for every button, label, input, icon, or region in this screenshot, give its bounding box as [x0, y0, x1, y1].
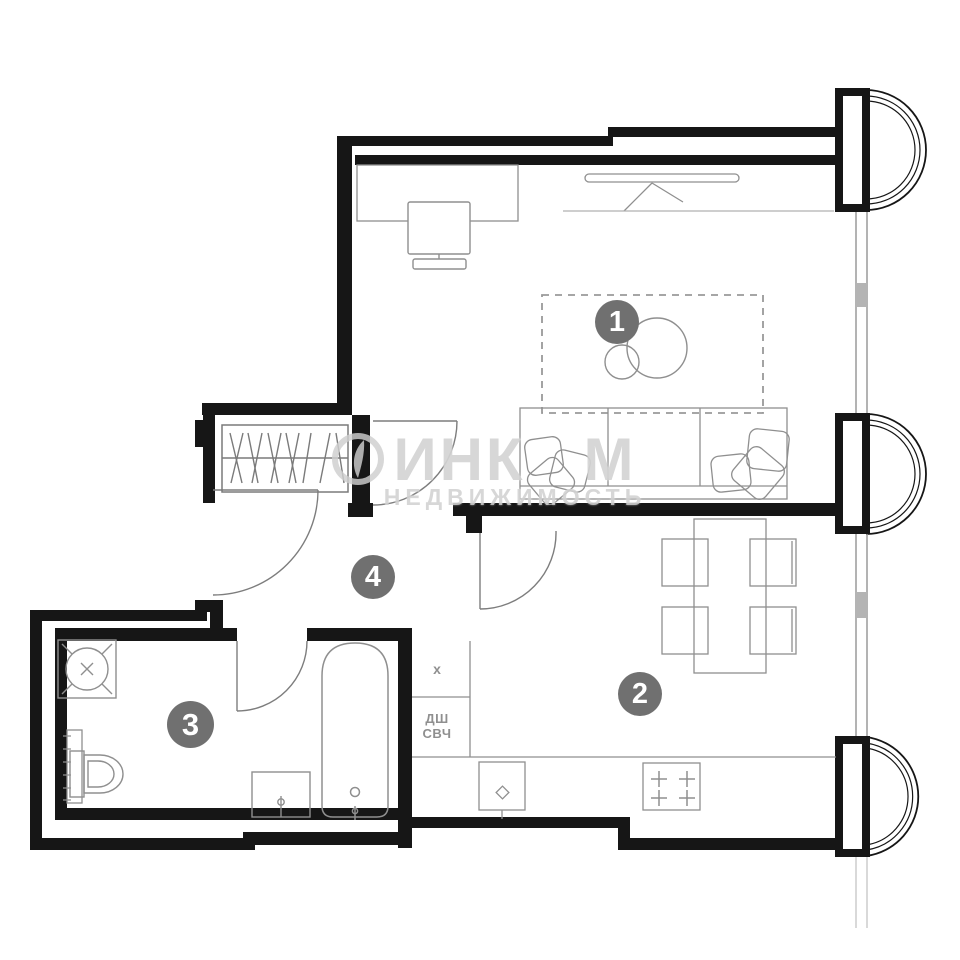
closet-label-oven: ДШ: [407, 711, 467, 726]
closet-label-x: х: [417, 661, 457, 677]
bay-window-middle: [839, 414, 926, 534]
room-badge-4: 4: [351, 555, 395, 599]
washing-machine: [58, 640, 116, 698]
rug-dashed: [542, 295, 763, 413]
bay-window-bottom: [839, 737, 918, 856]
door-entrance: [213, 490, 318, 595]
room-badge-1: 1: [595, 300, 639, 344]
kitchen-sink: [479, 762, 525, 819]
sofa: [520, 408, 790, 508]
dining-chairs: [662, 539, 796, 654]
floor-plan-drawing: [0, 0, 960, 960]
bathtub: [322, 643, 388, 820]
stove: [643, 763, 700, 810]
room-badge-3: 3: [167, 701, 214, 748]
monitor-icon: [408, 202, 470, 269]
bay-window-top: [839, 90, 926, 210]
room-badge-2: 2: [618, 672, 662, 716]
closet-label-appliances: ДШ СВЧ: [407, 711, 467, 741]
closet-label-microwave: СВЧ: [407, 726, 467, 741]
floor-plan: 1 2 3 4 х ДШ СВЧ ИНКМ НЕДВИЖИМОСТЬ: [0, 0, 960, 960]
door-room1: [373, 421, 457, 505]
dining-table: [694, 519, 766, 673]
door-bathroom: [237, 641, 307, 711]
door-kitchen: [480, 531, 556, 609]
wardrobe: [222, 425, 348, 492]
drying-rack: [585, 174, 739, 211]
toilet: [70, 751, 123, 797]
